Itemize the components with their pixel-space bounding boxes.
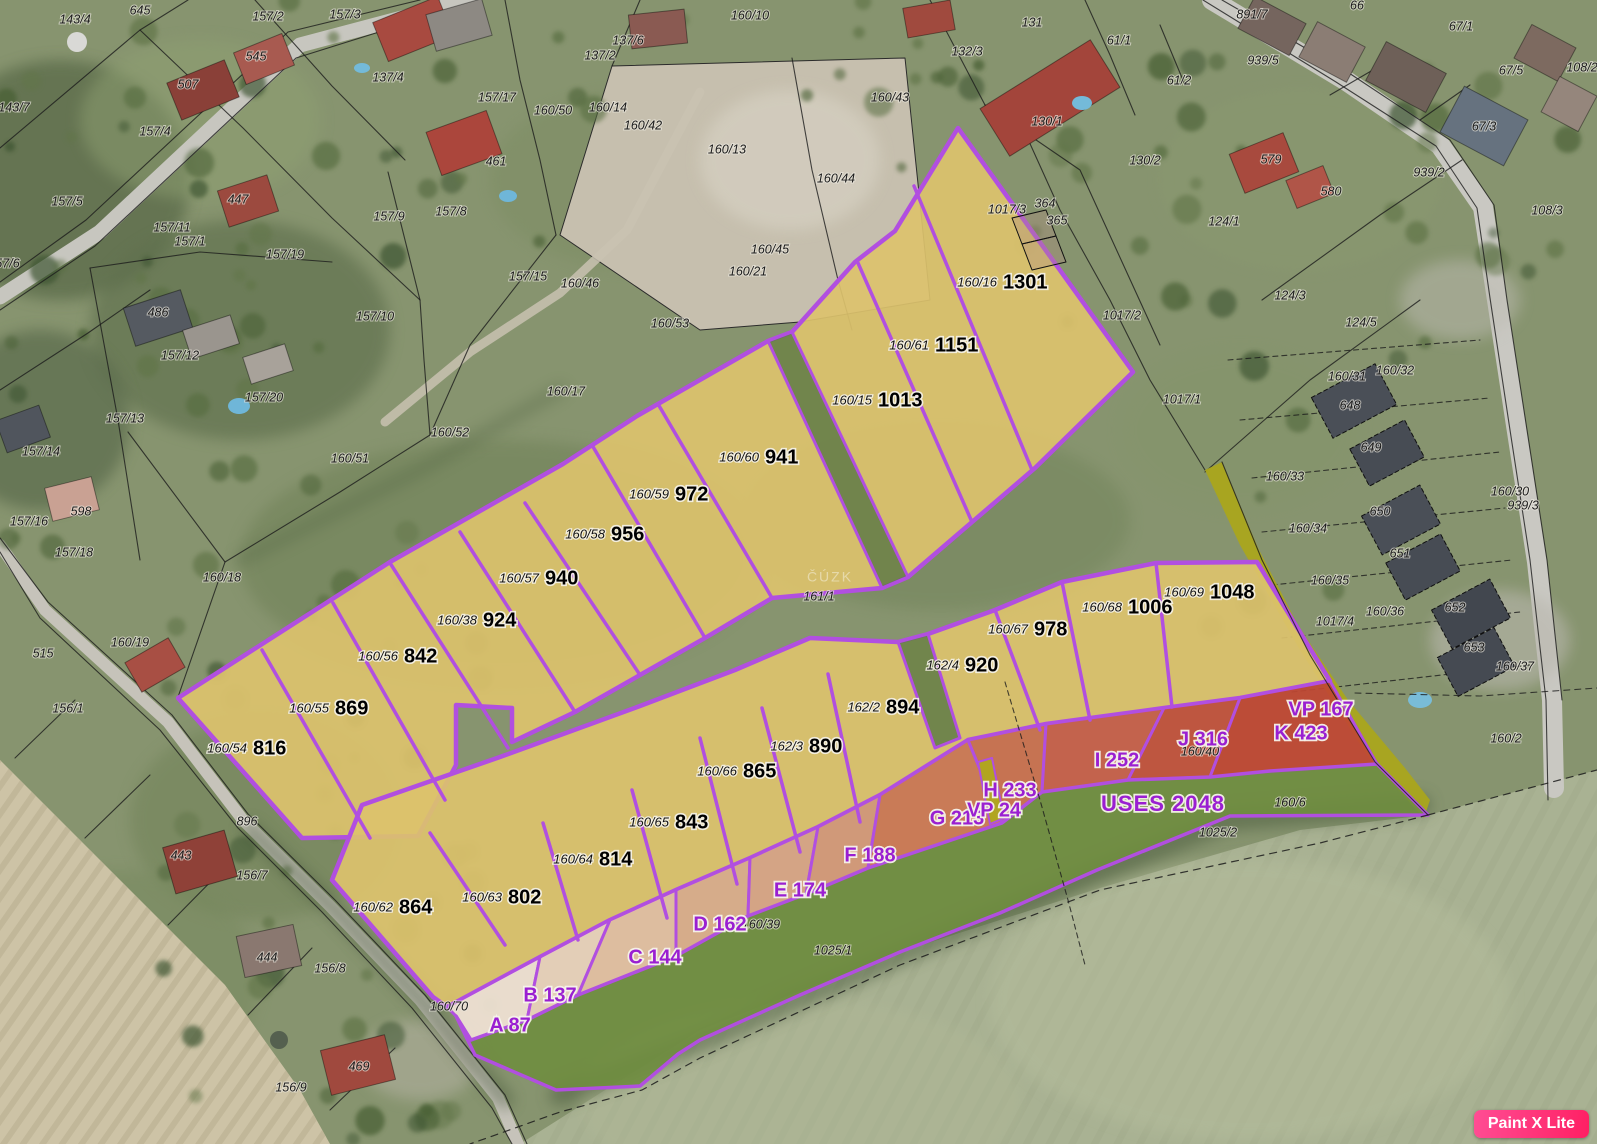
cad-label: 160/33 [1266,469,1304,483]
tree [361,969,373,981]
cad-label: 137/2 [584,48,615,62]
cad-label: 545 [246,49,267,63]
pcode-label: 160/15 [832,392,873,407]
tree [5,336,19,350]
pnum-label: 842 [404,645,437,667]
tree [342,1017,367,1042]
zone-label: B 137 [523,984,576,1006]
tree [313,342,324,353]
cad-label: 160/45 [751,242,789,256]
cad-label: 157/16 [10,514,48,528]
pcode-label: 160/16 [957,274,998,289]
cad-label: 157/1 [174,234,205,248]
tree [910,73,922,85]
tree [167,618,185,636]
cad-label: 486 [148,305,169,319]
tree [240,313,266,339]
tree [142,256,153,267]
zone-label: H 233 [983,779,1036,801]
pcode-label: 160/58 [565,526,606,541]
cad-label: 160/42 [624,118,662,132]
pnum-label: 814 [599,848,633,870]
zone big-label: USES 2048 [1101,791,1225,816]
tree [182,1025,204,1047]
lawn-patch [1120,350,1360,510]
pnum-label: 865 [743,760,776,782]
tree [249,223,272,246]
tree [391,147,402,158]
tree [1131,237,1149,255]
tree [1049,143,1073,167]
tree [231,455,258,482]
pcode-label: 160/54 [207,740,247,755]
pcode-label: 160/66 [697,763,738,778]
cad-label: 137/6 [612,33,643,47]
cad-label: 652 [1445,600,1466,614]
tree [9,385,27,403]
pnum-label: 890 [809,735,842,757]
tree [66,131,77,142]
tree [355,1106,384,1135]
cad-label: 157/20 [245,390,283,404]
zone-label: C 144 [628,946,682,968]
tree [186,393,210,417]
cad-label: 161/1 [803,589,834,603]
tree [118,121,129,132]
cad-label: 130/1 [1031,114,1062,128]
cad-label: 1017/1 [1163,392,1201,406]
tree [552,31,564,43]
cad-label: 124/5 [1345,315,1376,329]
faint-label: ČÚZK [807,569,853,585]
cad-label: 156/7 [236,868,268,882]
tree [246,280,257,291]
pnum-label: 843 [675,811,708,833]
cad-label: 461 [486,154,507,168]
tree [161,680,177,696]
cad-label: 1025/2 [1199,825,1237,839]
tree [155,960,171,976]
watermark-badge: Paint X Lite [1474,1110,1589,1138]
cad-label: 157/12 [161,348,199,362]
tree [1419,336,1432,349]
cad-label: 157/2 [252,9,283,23]
pnum-label: 1013 [878,389,923,411]
cad-label: 598 [71,504,92,518]
tree [1255,491,1267,503]
cad-label: 157/14 [22,444,60,458]
tree [433,59,457,83]
cad-label: 469 [349,1059,370,1073]
tree [938,66,958,86]
zone-label: E 174 [774,879,827,901]
cad-label: 160/14 [589,100,627,114]
pnum-label: 864 [399,896,433,918]
cad-label: 66 [1350,0,1364,12]
cad-label: 137/4 [372,70,403,84]
cad-label: 1025/1 [814,943,852,957]
tree [1286,408,1311,433]
tree [327,31,339,43]
cad-label: 157/13 [106,411,144,425]
zone-label: D 162 [693,913,746,935]
tree [1546,240,1564,258]
cad-label: 160/46 [561,276,599,290]
cad-label: 156/9 [275,1080,306,1094]
pnum-label: 816 [253,737,286,759]
pcode-label: 160/64 [553,851,593,866]
tree [380,243,406,269]
cad-label: 157/6 [0,256,20,270]
cad-label: 160/34 [1289,521,1327,535]
pnum-label: 940 [545,567,578,589]
cad-label: 67/1 [1449,19,1473,33]
cad-label: 364 [1035,196,1056,210]
pool [354,63,370,73]
pcode-label: 160/65 [629,814,670,829]
pnum-label: 1301 [1003,271,1048,293]
tree [124,86,146,108]
pcode-label: 160/38 [437,612,478,627]
cad-label: 157/19 [266,247,304,261]
cad-label: 160/50 [534,103,572,117]
watermark-text: Paint X Lite [1488,1115,1575,1132]
cad-label: 650 [1370,504,1391,518]
tree [1208,53,1225,70]
cad-label: 1017/3 [988,202,1026,216]
cad-label: 160/32 [1376,363,1414,377]
pnum-label: 802 [508,886,541,908]
tree [395,521,419,545]
pool [499,190,517,202]
pnum-label: 941 [765,446,798,468]
cad-label: 160/44 [817,171,855,185]
cad-label: 131 [1022,15,1043,29]
cad-label: 444 [257,950,278,964]
pnum-label: 972 [675,483,708,505]
pcode-label: 160/60 [719,449,760,464]
tree [135,273,146,284]
pool [67,32,87,52]
cad-label: 160/17 [547,384,586,398]
cad-label: 160/52 [431,425,469,439]
cad-label: 108/3 [1531,203,1562,217]
tree [455,173,467,185]
cad-label: 143/7 [0,100,31,114]
tree [1239,351,1269,381]
cad-label: 160/2 [1490,731,1521,745]
tree [1190,177,1202,189]
cad-label: 651 [1390,546,1411,560]
cad-label: 61/2 [1167,73,1191,87]
pcode-label: 160/69 [1164,584,1204,599]
cad-label: 648 [1340,398,1361,412]
cad-label: 939/5 [1247,53,1278,67]
tree [418,179,438,199]
cad-label: 130/2 [1129,153,1160,167]
tree [1172,195,1201,224]
tree [801,89,813,101]
cad-label: 157/15 [509,269,547,283]
cad-label: 580 [1321,184,1342,198]
tree [189,1089,203,1103]
zone-label: VP 24 [967,799,1022,821]
tree [233,269,246,282]
zone-label: F 188 [844,844,895,866]
pnum-label: 956 [611,523,644,545]
tree [973,59,984,70]
tree [834,68,846,80]
tree [262,917,275,930]
cad-label: 1017/2 [1103,308,1141,322]
cad-label: 160/10 [731,8,769,22]
zone-label: K 423 [1274,722,1327,744]
cad-label: 67/5 [1499,63,1523,77]
cad-label: 61/1 [1107,33,1131,47]
cad-label: 515 [33,646,54,660]
tree [1521,264,1537,280]
pcode-label: 160/61 [889,337,929,352]
cad-label: 160/18 [203,570,241,584]
cad-label: 896 [237,814,258,828]
tree [300,474,321,495]
zone-label: J 316 [1178,728,1228,750]
pcode-label: 162/3 [770,738,803,753]
cad-label: 156/1 [52,701,83,715]
tree [380,150,393,163]
cad-label: 160/31 [1328,369,1366,383]
cad-label: 143/4 [59,12,90,26]
tree [235,242,248,255]
pnum-label: 924 [483,609,517,631]
tree [209,461,229,481]
cad-label: 160/37 [1496,659,1535,673]
pool [1072,96,1092,110]
pcode-label: 160/68 [1082,599,1123,614]
tree [21,71,41,91]
cad-label: 1017/4 [1316,614,1354,628]
pnum-label: 869 [335,697,368,719]
pcode-label: 160/57 [499,570,540,585]
cad-label: 160/30 [1491,484,1529,498]
cad-label: 160/36 [1366,604,1404,618]
cad-label: 157/10 [356,309,394,323]
tree [312,142,340,170]
cad-label: 157/5 [51,194,82,208]
cad-label: 160/53 [651,316,689,330]
tree [184,148,214,178]
pcode-label: 160/63 [462,889,503,904]
cad-label: 160/51 [331,451,369,465]
pnum-label: 1151 [935,334,978,356]
pcode-label: 160/67 [988,621,1029,636]
tree [533,235,545,247]
cad-label: 160/43 [871,90,909,104]
cadastral-map-svg: 143/4645157/2157/3545507137/4143/7157/41… [0,0,1597,1144]
pcode-label: 162/4 [926,657,959,672]
tree [1177,103,1206,132]
cad-label: 124/3 [1274,288,1305,302]
pnum-label: 920 [965,654,998,676]
tree [1405,221,1428,244]
tree [912,38,923,49]
cad-label: 157/4 [139,124,170,138]
cad-label: 67/3 [1472,119,1496,133]
cad-label: 645 [130,3,151,17]
pcode-label: 162/2 [847,699,880,714]
cad-label: 939/2 [1413,165,1444,179]
pcode-label: 160/56 [358,648,399,663]
cad-label: 156/8 [314,961,345,975]
tree [1161,282,1189,310]
soil-patch [700,90,880,230]
tree [420,1104,434,1118]
cad-label: 579 [1261,152,1282,166]
tree [174,812,200,838]
zone-label: A 87 [489,1014,531,1036]
cad-label: 160/35 [1311,573,1349,587]
cad-label: 157/8 [435,204,466,218]
tree [1208,289,1237,318]
cad-label: 132/3 [951,44,982,58]
cad-label: 160/39 [742,917,780,931]
trampoline [270,1031,288,1049]
tree [190,180,208,198]
tree [853,27,865,39]
cad-label: 157/3 [329,7,360,21]
tree [248,974,273,999]
cad-label: 160/19 [111,635,149,649]
cad-label: 157/18 [55,545,93,559]
pnum-label: 1006 [1128,596,1173,618]
cad-label: 507 [178,77,200,91]
zone-label: I 252 [1095,749,1139,771]
cad-label: 160/13 [708,142,746,156]
cad-label: 443 [171,848,192,862]
cad-label: 891/7 [1236,7,1268,21]
tree [137,355,159,377]
cad-label: 157/9 [373,209,404,223]
pcode-label: 160/55 [289,700,330,715]
cad-label: 649 [1361,440,1382,454]
pcode-label: 160/59 [629,486,669,501]
cad-label: 157/17 [478,90,517,104]
tree [281,865,292,876]
zone-label: VP 167 [1288,698,1353,720]
tree [896,162,906,172]
cad-label: 124/1 [1208,214,1239,228]
cad-label: 160/6 [1274,795,1305,809]
cad-label: 160/70 [430,999,468,1013]
cad-label: 365 [1047,213,1068,227]
cad-label: 157/11 [153,220,190,234]
pnum-label: 1048 [1210,581,1255,603]
pnum-label: 894 [886,696,920,718]
cad-label: 939/3 [1507,498,1538,512]
cad-label: 447 [228,192,250,206]
map-viewport[interactable]: 143/4645157/2157/3545507137/4143/7157/41… [0,0,1597,1144]
cad-label: 108/2 [1566,60,1597,74]
cad-label: 160/21 [729,264,767,278]
pcode-label: 160/62 [353,899,394,914]
cad-label: 653 [1464,640,1485,654]
pnum-label: 978 [1034,618,1067,640]
